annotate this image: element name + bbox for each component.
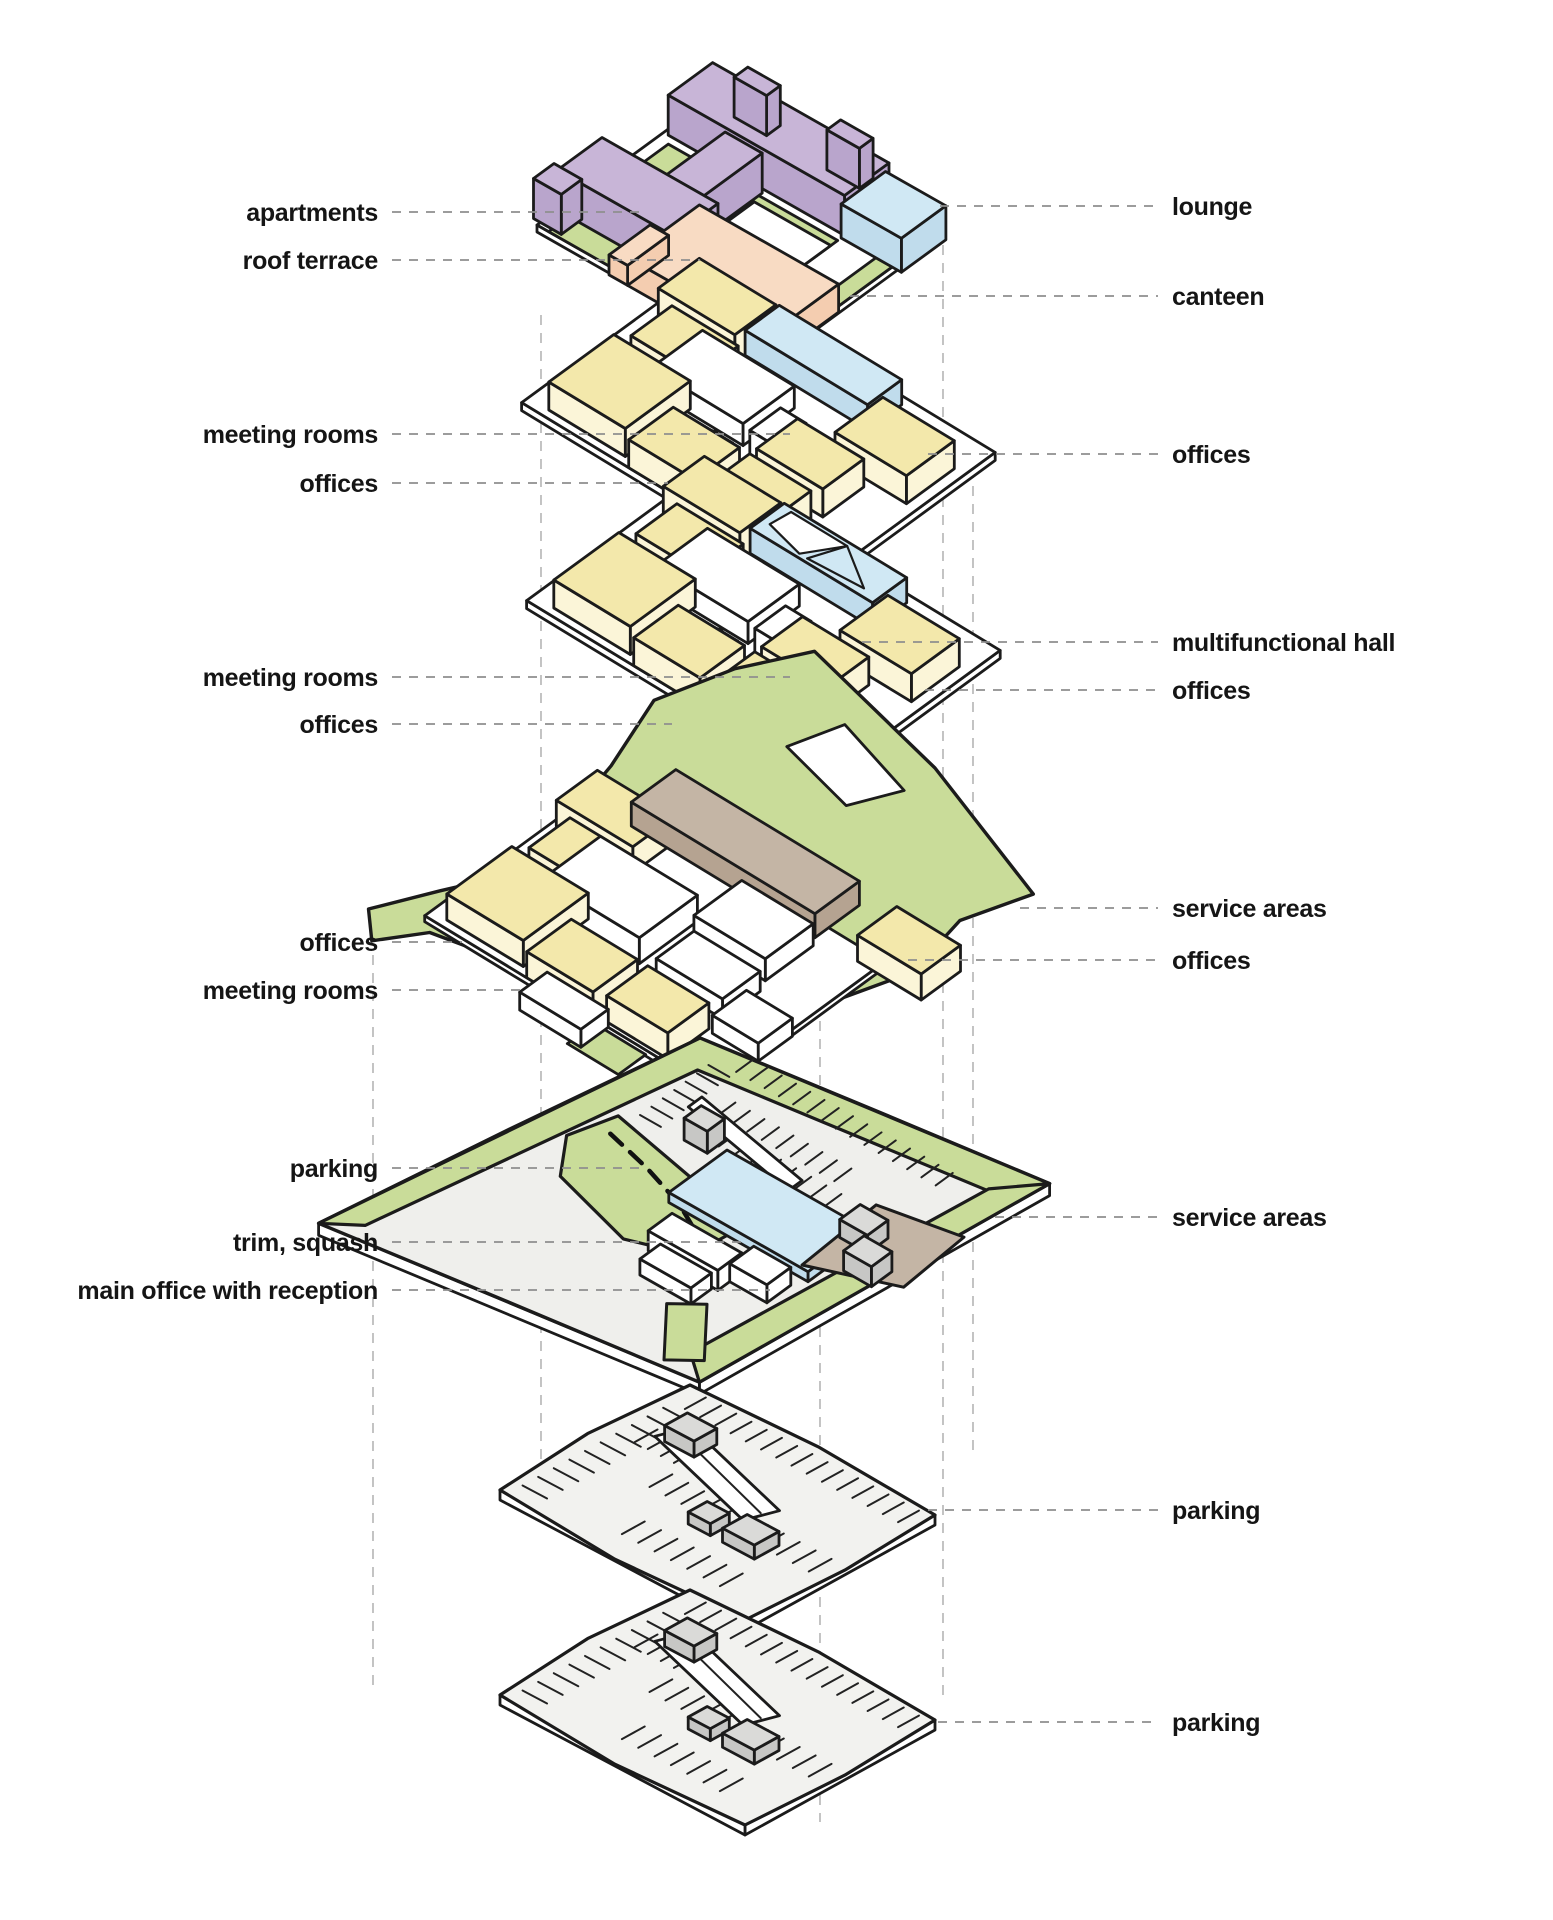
label-right-offices: offices — [1172, 441, 1250, 469]
label-right-canteen: canteen — [1172, 283, 1264, 311]
level-parking — [500, 1385, 935, 1630]
label-left-offices: offices — [300, 711, 378, 739]
exploded-axonometric-diagram: apartmentsroof terraceloungecanteenmeeti… — [0, 0, 1553, 1920]
label-left-offices: offices — [300, 470, 378, 498]
diagram-scene: apartmentsroof terraceloungecanteenmeeti… — [0, 0, 1553, 1920]
level-parking — [500, 1590, 935, 1835]
parking-plate — [500, 1590, 935, 1825]
label-left-parking: parking — [290, 1155, 378, 1183]
label-right-service-areas: service areas — [1172, 1204, 1327, 1232]
label-left-meeting-rooms: meeting rooms — [203, 664, 378, 692]
label-right-service-areas: service areas — [1172, 895, 1327, 923]
level-ground — [319, 1038, 1050, 1394]
label-right-parking: parking — [1172, 1497, 1260, 1525]
parking-plate — [500, 1385, 935, 1620]
label-left-meeting-rooms: meeting rooms — [203, 421, 378, 449]
label-right-lounge: lounge — [1172, 193, 1253, 221]
label-right-offices: offices — [1172, 677, 1250, 705]
label-left-trim-squash: trim, squash — [233, 1229, 378, 1257]
label-right-offices: offices — [1172, 947, 1250, 975]
label-left-main-office-with-reception: main office with reception — [77, 1277, 378, 1305]
label-left-roof-terrace: roof terrace — [243, 247, 379, 275]
label-left-offices: offices — [300, 929, 378, 957]
green-strip — [664, 1304, 707, 1361]
label-left-apartments: apartments — [246, 199, 378, 227]
label-right-multifunctional-hall: multifunctional hall — [1172, 629, 1395, 657]
label-right-parking: parking — [1172, 1709, 1260, 1737]
level-podium — [369, 651, 1034, 1095]
label-left-meeting-rooms: meeting rooms — [203, 977, 378, 1005]
